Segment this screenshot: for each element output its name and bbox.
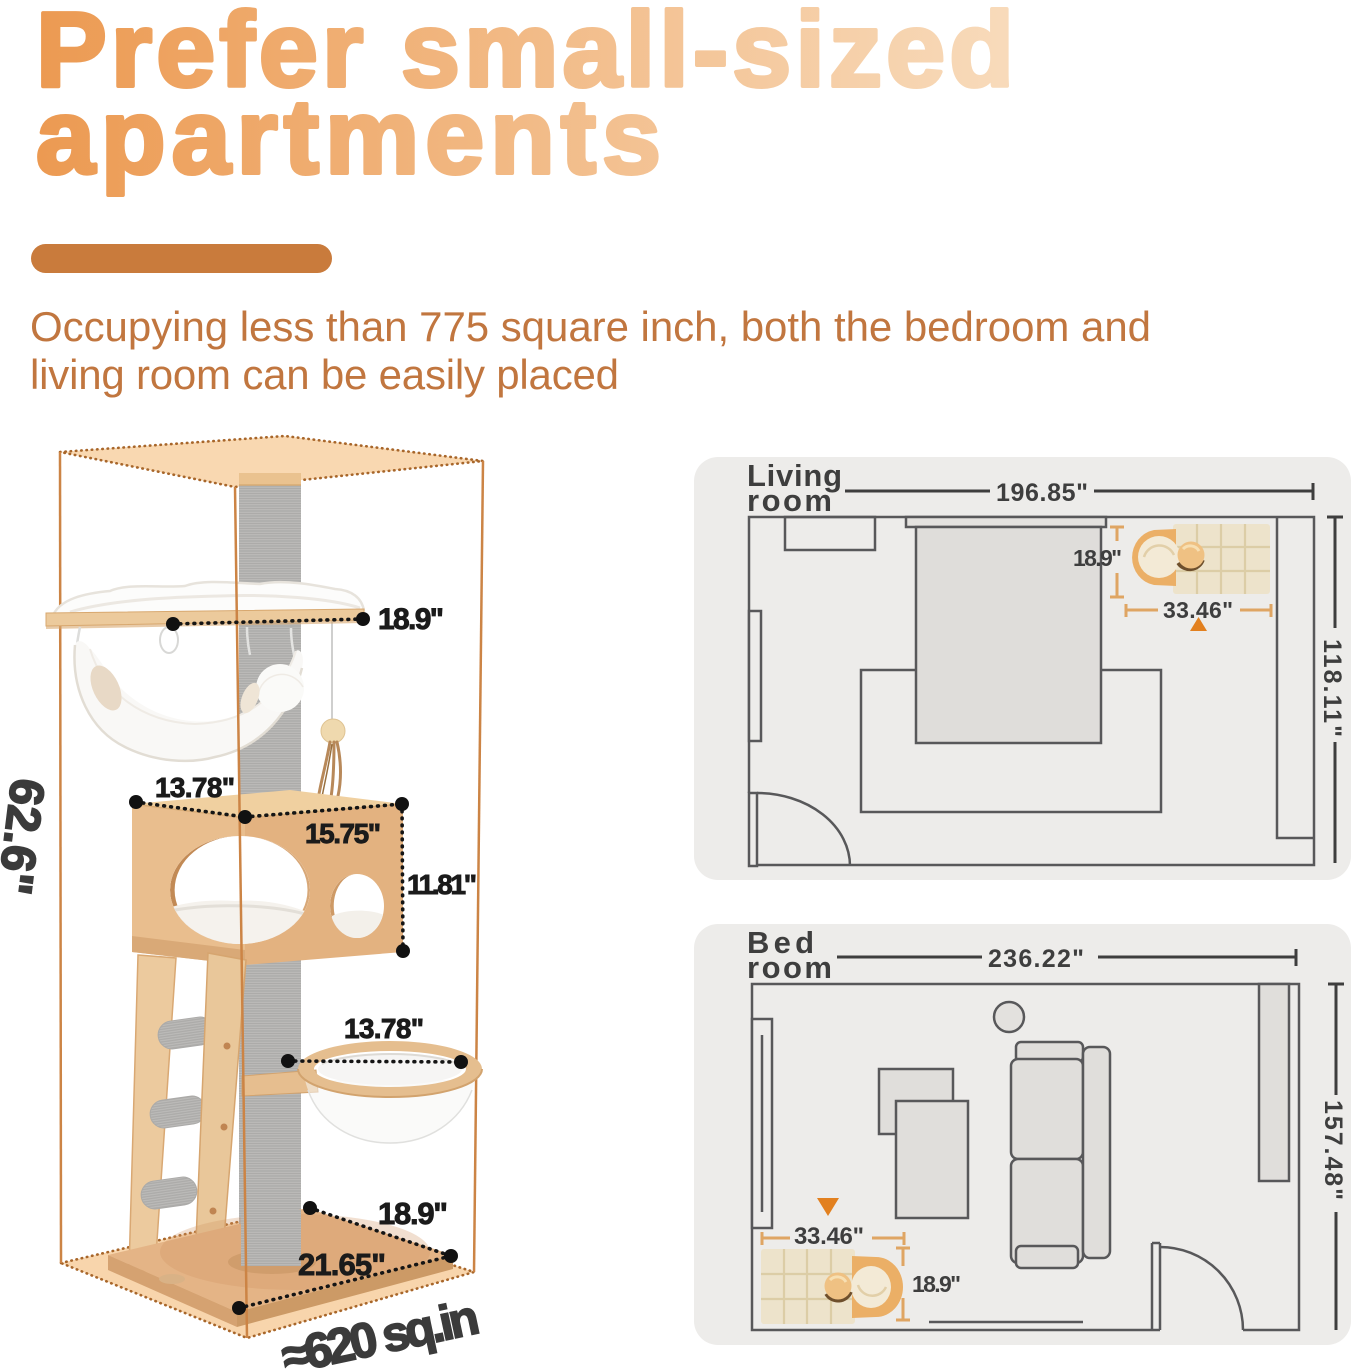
svg-text:18.9": 18.9" <box>1073 545 1122 571</box>
svg-text:Occupying less than 775 square: Occupying less than 775 square inch, bot… <box>30 303 1151 350</box>
svg-text:62.6": 62.6" <box>0 776 54 898</box>
svg-text:18.9": 18.9" <box>378 603 444 636</box>
svg-text:157.48": 157.48" <box>1319 1100 1347 1200</box>
svg-text:15.75": 15.75" <box>305 818 381 849</box>
svg-text:21.65": 21.65" <box>298 1247 386 1282</box>
svg-text:118.11": 118.11" <box>1318 639 1346 737</box>
svg-text:18.9": 18.9" <box>912 1271 961 1297</box>
svg-text:living room can be easily plac: living room can be easily placed <box>30 351 619 398</box>
svg-text:18.9": 18.9" <box>378 1196 448 1231</box>
svg-text:236.22": 236.22" <box>988 945 1084 973</box>
svg-text:33.46": 33.46" <box>794 1223 864 1250</box>
svg-text:13.78": 13.78" <box>344 1013 424 1044</box>
svg-text:13.78": 13.78" <box>155 772 235 803</box>
svg-text:196.85": 196.85" <box>996 479 1088 507</box>
svg-text:apartments: apartments <box>36 78 660 196</box>
svg-text:11.81": 11.81" <box>407 869 477 900</box>
